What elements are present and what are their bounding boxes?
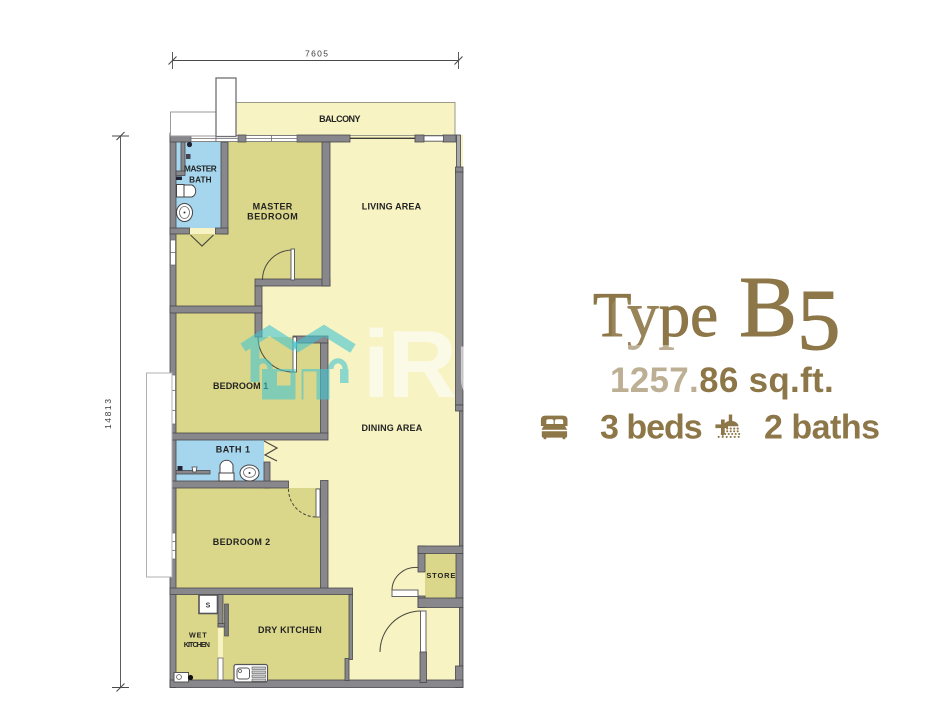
svg-text:3 beds: 3 beds: [600, 409, 702, 447]
svg-text:BALCONY: BALCONY: [319, 114, 361, 124]
svg-text:S: S: [206, 603, 211, 610]
svg-text:MASTER: MASTER: [253, 202, 293, 212]
svg-text:BEDROOM 2: BEDROOM 2: [213, 537, 271, 547]
svg-text:KITCHEN: KITCHEN: [184, 640, 211, 649]
svg-text:WET: WET: [189, 631, 207, 640]
svg-text:DRY KITCHEN: DRY KITCHEN: [258, 625, 322, 635]
svg-text:iRu: iRu: [363, 311, 512, 418]
svg-text:BATH: BATH: [189, 176, 212, 185]
svg-text:LIVING AREA: LIVING AREA: [362, 202, 422, 212]
svg-text:B5: B5: [739, 258, 841, 368]
svg-text:BEDROOM: BEDROOM: [247, 212, 298, 222]
svg-text:DINING AREA: DINING AREA: [362, 423, 423, 433]
svg-text:STORE: STORE: [426, 571, 455, 580]
svg-text:BATH 1: BATH 1: [216, 445, 251, 455]
svg-text:7605: 7605: [305, 49, 328, 59]
svg-text:2 baths: 2 baths: [764, 409, 880, 447]
svg-text:MASTER: MASTER: [184, 165, 217, 174]
svg-text:14813: 14813: [103, 399, 113, 429]
svg-text:BEDROOM 1: BEDROOM 1: [213, 381, 269, 391]
